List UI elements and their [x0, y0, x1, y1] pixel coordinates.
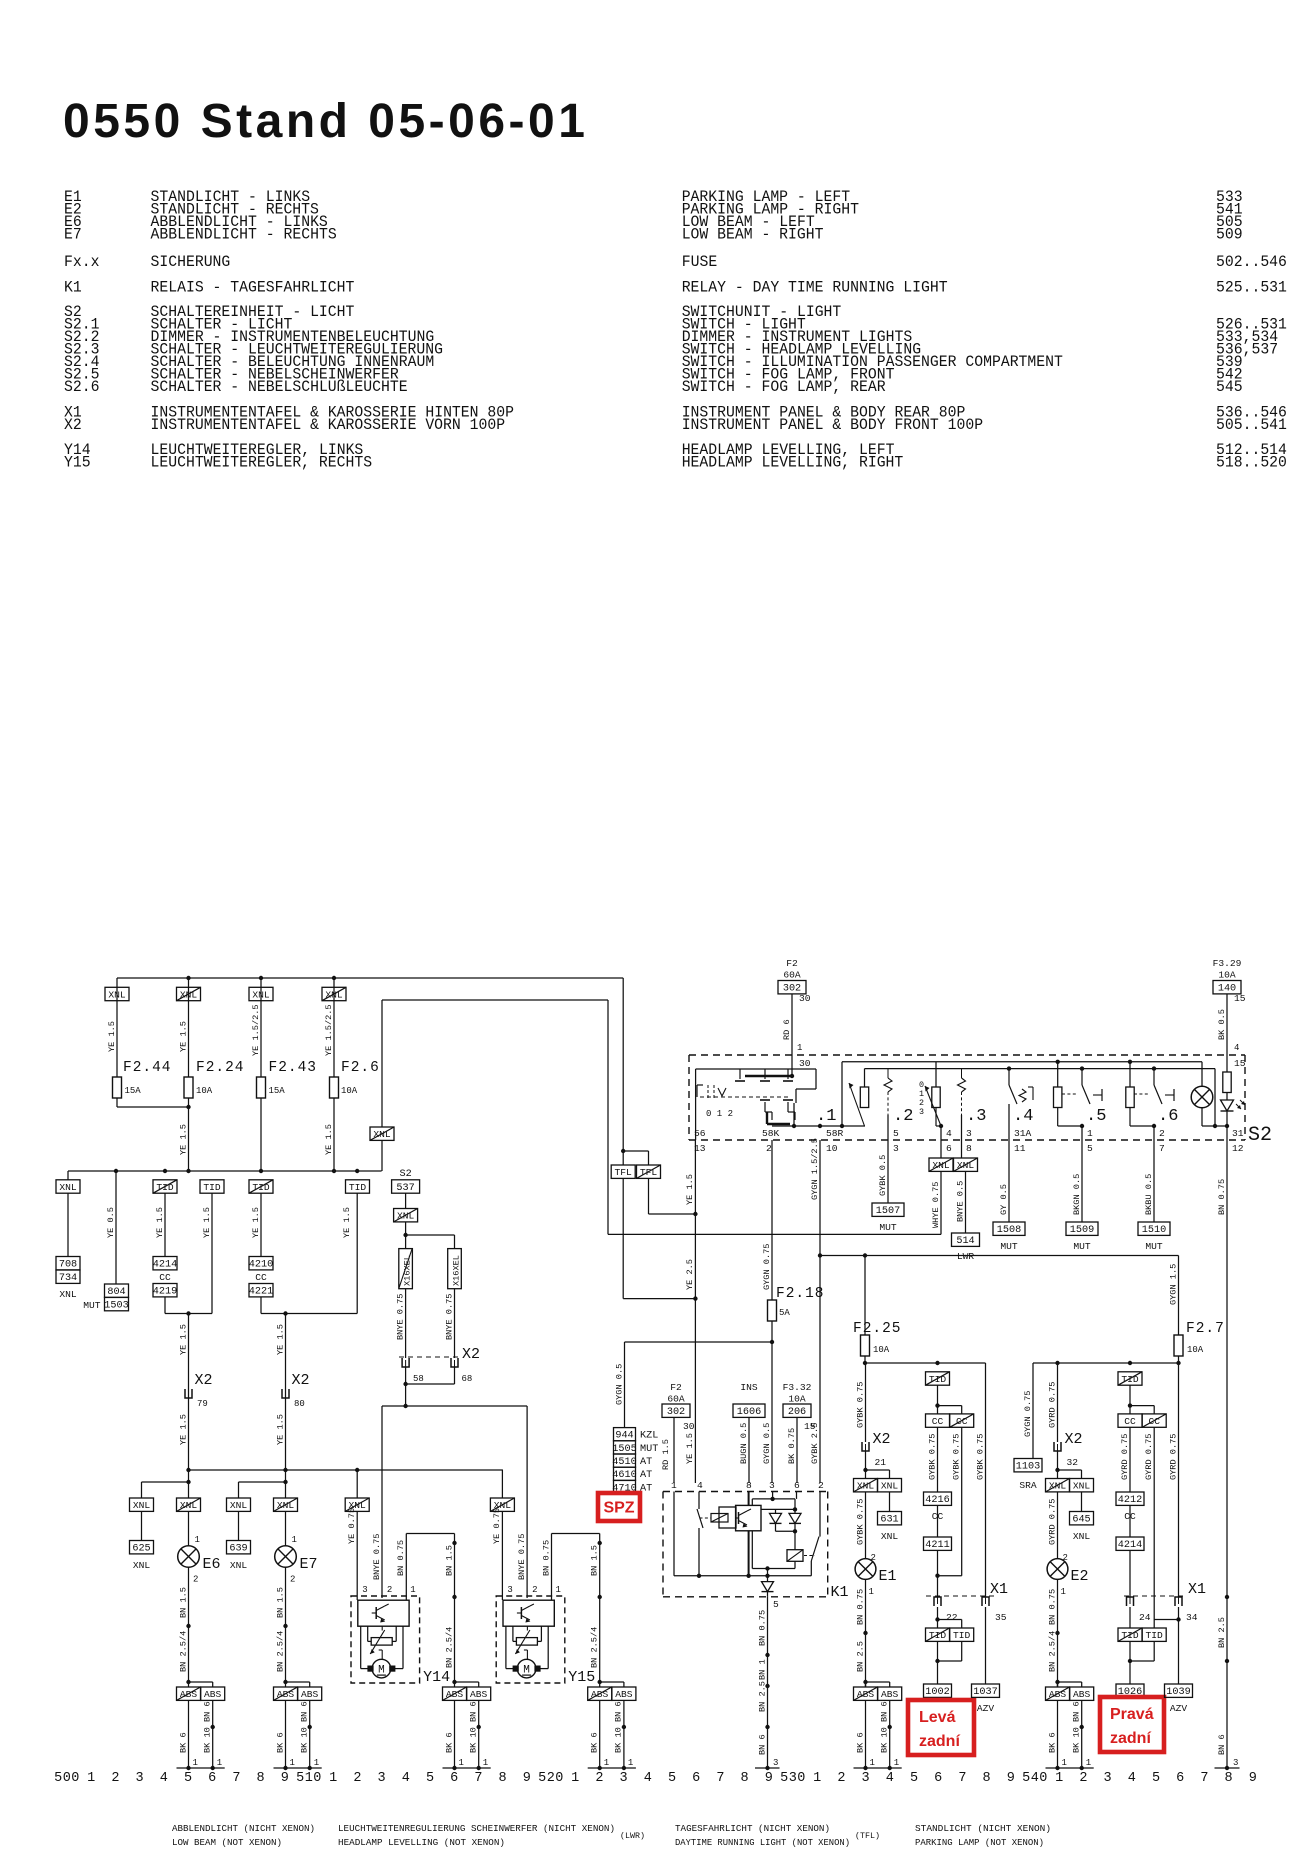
- svg-text:GYBK 0.75: GYBK 0.75: [975, 1434, 985, 1480]
- svg-text:4210: 4210: [249, 1260, 273, 1271]
- svg-text:YE 2.5: YE 2.5: [685, 1259, 695, 1290]
- svg-text:1510: 1510: [1142, 1225, 1166, 1236]
- svg-text:4214: 4214: [1118, 1540, 1142, 1551]
- svg-text:GYBK 0.75: GYBK 0.75: [927, 1434, 937, 1480]
- svg-text:1: 1: [556, 1585, 561, 1595]
- svg-text:BN 2.5: BN 2.5: [1217, 1617, 1227, 1648]
- svg-text:XNL: XNL: [108, 990, 126, 1001]
- svg-text:3: 3: [362, 1585, 367, 1595]
- svg-text:LEUCHTWEITENREGULIERUNG SCHEIN: LEUCHTWEITENREGULIERUNG SCHEINWERFER (NI…: [338, 1823, 615, 1834]
- svg-text:3: 3: [966, 1128, 972, 1139]
- svg-text:GYRD 0.75: GYRD 0.75: [1047, 1499, 1057, 1545]
- svg-text:Y15: Y15: [64, 454, 91, 472]
- svg-text:YE 0.5: YE 0.5: [106, 1207, 116, 1238]
- svg-text:31: 31: [1232, 1128, 1244, 1139]
- svg-text:YE 1.5: YE 1.5: [251, 1207, 261, 1238]
- svg-text:GYGN 0.5: GYGN 0.5: [614, 1364, 624, 1405]
- svg-text:79: 79: [197, 1399, 208, 1409]
- svg-text:4214: 4214: [153, 1260, 177, 1271]
- svg-text:7: 7: [958, 1771, 966, 1786]
- svg-text:631: 631: [880, 1515, 898, 1526]
- svg-text:10A: 10A: [788, 1394, 806, 1405]
- svg-text:0 1 2: 0 1 2: [706, 1109, 733, 1119]
- svg-text:510: 510: [296, 1771, 322, 1786]
- svg-text:1: 1: [459, 1758, 464, 1768]
- svg-text:500: 500: [54, 1771, 80, 1786]
- svg-text:1507: 1507: [876, 1206, 900, 1217]
- svg-text:.1: .1: [816, 1107, 836, 1126]
- svg-text:9: 9: [765, 1771, 773, 1786]
- svg-text:4: 4: [160, 1771, 168, 1786]
- svg-text:BN 6: BN 6: [1217, 1734, 1227, 1755]
- svg-text:SWITCH - FOG LAMP, REAR: SWITCH - FOG LAMP, REAR: [682, 378, 886, 396]
- svg-text:4221: 4221: [249, 1287, 273, 1298]
- svg-text:BN 1.5: BN 1.5: [444, 1545, 454, 1576]
- svg-text:XNL: XNL: [133, 1500, 151, 1511]
- svg-text:2: 2: [387, 1585, 392, 1595]
- svg-text:6: 6: [450, 1771, 458, 1786]
- svg-text:YE 1.5: YE 1.5: [178, 1124, 188, 1155]
- svg-text:6: 6: [794, 1480, 800, 1491]
- svg-text:BN 2.5/4: BN 2.5/4: [444, 1627, 454, 1668]
- svg-text:.3: .3: [966, 1107, 986, 1126]
- svg-text:509: 509: [1216, 226, 1243, 244]
- svg-text:CC: CC: [159, 1272, 171, 1283]
- svg-text:6: 6: [1176, 1771, 1184, 1786]
- svg-text:804: 804: [107, 1287, 125, 1298]
- svg-text:9: 9: [1007, 1771, 1015, 1786]
- svg-text:1: 1: [671, 1480, 677, 1491]
- svg-text:TID: TID: [953, 1630, 971, 1641]
- svg-text:15: 15: [1234, 1058, 1246, 1069]
- svg-text:1: 1: [329, 1771, 337, 1786]
- svg-text:XNL: XNL: [133, 1560, 151, 1571]
- svg-text:BN 2.5/4: BN 2.5/4: [1047, 1631, 1057, 1672]
- svg-text:Y15: Y15: [568, 1669, 595, 1686]
- svg-text:3: 3: [507, 1585, 512, 1595]
- svg-text:1: 1: [292, 1535, 297, 1545]
- svg-text:30: 30: [799, 1058, 811, 1069]
- svg-text:BK 0.75: BK 0.75: [787, 1428, 797, 1464]
- svg-text:XNL: XNL: [230, 1560, 248, 1571]
- svg-text:BN 0.75: BN 0.75: [1217, 1179, 1227, 1215]
- svg-text:ABS: ABS: [204, 1689, 222, 1700]
- svg-text:30: 30: [683, 1421, 695, 1432]
- svg-text:5: 5: [1087, 1143, 1093, 1154]
- svg-text:3: 3: [862, 1771, 870, 1786]
- svg-text:15: 15: [804, 1421, 816, 1432]
- svg-text:X2: X2: [64, 416, 82, 434]
- svg-text:545: 545: [1216, 378, 1243, 396]
- svg-text:BN 6: BN 6: [757, 1734, 767, 1755]
- svg-text:BK 6: BK 6: [855, 1732, 865, 1753]
- svg-text:4: 4: [946, 1128, 952, 1139]
- svg-text:BN 6: BN 6: [300, 1701, 310, 1722]
- svg-text:ABS: ABS: [1073, 1689, 1091, 1700]
- svg-text:1508: 1508: [997, 1225, 1021, 1236]
- svg-text:YE 0.75: YE 0.75: [492, 1508, 502, 1544]
- svg-text:GYGN 0.5: GYGN 0.5: [762, 1423, 772, 1464]
- svg-text:1: 1: [1086, 1758, 1091, 1768]
- svg-text:YE 1.5: YE 1.5: [107, 1021, 117, 1052]
- svg-text:BK 10: BK 10: [1072, 1727, 1082, 1753]
- svg-text:K1: K1: [64, 279, 82, 297]
- svg-text:YE 1.5/2.5: YE 1.5/2.5: [324, 1004, 334, 1056]
- svg-text:YE 1.5: YE 1.5: [685, 1174, 695, 1205]
- svg-text:MUT: MUT: [1073, 1241, 1091, 1252]
- svg-text:7: 7: [1159, 1143, 1165, 1154]
- svg-text:XNL: XNL: [252, 990, 270, 1001]
- svg-text:7: 7: [474, 1771, 482, 1786]
- svg-text:BUGN 0.5: BUGN 0.5: [739, 1423, 749, 1464]
- svg-text:AT: AT: [640, 1457, 652, 1468]
- svg-text:F2.24: F2.24: [196, 1060, 245, 1076]
- svg-text:X2: X2: [292, 1372, 310, 1389]
- svg-text:TID: TID: [1146, 1630, 1164, 1641]
- svg-text:BN 0.75: BN 0.75: [855, 1589, 865, 1625]
- svg-text:BN 0.75: BN 0.75: [541, 1540, 551, 1576]
- svg-text:GYRD 0.75: GYRD 0.75: [1047, 1382, 1057, 1428]
- svg-text:GYBK 0.5: GYBK 0.5: [878, 1155, 888, 1196]
- svg-text:RELAIS - TAGESFAHRLICHT: RELAIS - TAGESFAHRLICHT: [151, 279, 355, 297]
- svg-text:GYBK 0.75: GYBK 0.75: [952, 1434, 962, 1480]
- svg-text:YE 1.5/2.5: YE 1.5/2.5: [251, 1004, 261, 1056]
- svg-text:625: 625: [132, 1544, 150, 1555]
- svg-text:MUT: MUT: [83, 1300, 101, 1311]
- svg-text:F2: F2: [786, 958, 798, 969]
- svg-text:XNL: XNL: [59, 1182, 77, 1193]
- svg-text:XNL: XNL: [59, 1289, 77, 1300]
- svg-text:5: 5: [184, 1771, 192, 1786]
- svg-text:SRA: SRA: [1019, 1480, 1037, 1491]
- svg-text:4610: 4610: [612, 1470, 636, 1481]
- svg-text:FUSE: FUSE: [682, 253, 718, 271]
- svg-text:518..520: 518..520: [1216, 454, 1287, 472]
- svg-text:GYRD 0.75: GYRD 0.75: [1168, 1434, 1178, 1480]
- svg-text:.6: .6: [1158, 1107, 1178, 1126]
- svg-text:1: 1: [314, 1758, 319, 1768]
- svg-text:BN 6: BN 6: [614, 1701, 624, 1722]
- svg-text:LEUCHTWEITEREGLER, RECHTS: LEUCHTWEITEREGLER, RECHTS: [151, 454, 373, 472]
- svg-text:1: 1: [217, 1758, 222, 1768]
- svg-text:BK 6: BK 6: [444, 1732, 454, 1753]
- svg-text:X2: X2: [1065, 1431, 1083, 1448]
- svg-text:BN 2.5: BN 2.5: [855, 1641, 865, 1672]
- svg-text:7: 7: [232, 1771, 240, 1786]
- svg-text:9: 9: [523, 1771, 531, 1786]
- svg-text:XNL: XNL: [881, 1531, 899, 1542]
- svg-text:(LWR): (LWR): [620, 1831, 645, 1841]
- svg-text:S2.6: S2.6: [64, 378, 100, 396]
- svg-text:SPZ: SPZ: [603, 1500, 634, 1517]
- svg-text:ABS: ABS: [615, 1689, 633, 1700]
- svg-text:1: 1: [894, 1758, 899, 1768]
- svg-text:BK 6: BK 6: [275, 1732, 285, 1753]
- svg-text:1: 1: [813, 1771, 821, 1786]
- svg-text:YE 1.5: YE 1.5: [275, 1324, 285, 1355]
- svg-text:F2.7: F2.7: [1186, 1321, 1225, 1337]
- svg-text:BK 6: BK 6: [1047, 1732, 1057, 1753]
- svg-text:KZL: KZL: [640, 1431, 658, 1442]
- svg-text:INSTRUMENT PANEL & BODY FRONT: INSTRUMENT PANEL & BODY FRONT 100P: [682, 416, 983, 434]
- svg-text:1: 1: [571, 1771, 579, 1786]
- svg-text:X1: X1: [1188, 1581, 1206, 1598]
- svg-text:708: 708: [59, 1260, 77, 1271]
- svg-text:HEADLAMP LEVELLING (NOT XENON): HEADLAMP LEVELLING (NOT XENON): [338, 1837, 505, 1848]
- svg-text:639: 639: [229, 1544, 247, 1555]
- svg-text:2: 2: [595, 1771, 603, 1786]
- svg-text:4: 4: [1128, 1771, 1136, 1786]
- svg-text:E2: E2: [1071, 1568, 1089, 1585]
- svg-text:15: 15: [1234, 993, 1246, 1004]
- svg-text:3: 3: [378, 1771, 386, 1786]
- svg-text:3: 3: [1233, 1758, 1238, 1768]
- svg-text:12: 12: [1232, 1143, 1244, 1154]
- svg-text:E7: E7: [64, 226, 82, 244]
- svg-text:2: 2: [837, 1771, 845, 1786]
- svg-text:YE 0.75: YE 0.75: [347, 1508, 357, 1544]
- svg-text:F3.29: F3.29: [1213, 958, 1242, 969]
- svg-text:2: 2: [532, 1585, 537, 1595]
- svg-text:X2: X2: [873, 1431, 891, 1448]
- svg-text:3: 3: [1104, 1771, 1112, 1786]
- svg-text:BN 6: BN 6: [880, 1701, 890, 1722]
- svg-text:3: 3: [769, 1480, 775, 1491]
- svg-text:1: 1: [870, 1758, 875, 1768]
- svg-text:2: 2: [193, 1575, 198, 1585]
- svg-text:GYBK 0.75: GYBK 0.75: [855, 1499, 865, 1545]
- svg-text:BN 6: BN 6: [469, 1701, 479, 1722]
- svg-text:530: 530: [780, 1771, 806, 1786]
- svg-text:YE 1.5: YE 1.5: [342, 1207, 352, 1238]
- svg-text:505..541: 505..541: [1216, 416, 1287, 434]
- svg-text:STANDLICHT (NICHT XENON): STANDLICHT (NICHT XENON): [915, 1823, 1051, 1834]
- svg-text:F2.43: F2.43: [269, 1060, 318, 1076]
- svg-text:K1: K1: [831, 1584, 849, 1601]
- svg-text:ABS: ABS: [881, 1689, 899, 1700]
- svg-text:HEADLAMP LEVELLING, RIGHT: HEADLAMP LEVELLING, RIGHT: [682, 454, 904, 472]
- svg-text:RD 6: RD 6: [782, 1019, 792, 1040]
- svg-text:F3.32: F3.32: [783, 1382, 812, 1393]
- svg-text:9: 9: [281, 1771, 289, 1786]
- svg-text:11: 11: [1014, 1143, 1026, 1154]
- svg-text:BKBU 0.5: BKBU 0.5: [1144, 1174, 1154, 1215]
- svg-text:32: 32: [1067, 1457, 1079, 1468]
- svg-text:GYGN 0.75: GYGN 0.75: [1023, 1391, 1033, 1437]
- svg-text:2: 2: [111, 1771, 119, 1786]
- svg-text:MUT: MUT: [1145, 1241, 1163, 1252]
- svg-text:35: 35: [995, 1612, 1007, 1623]
- svg-text:21: 21: [875, 1457, 887, 1468]
- svg-text:6: 6: [692, 1771, 700, 1786]
- svg-text:4: 4: [644, 1771, 652, 1786]
- svg-text:1505: 1505: [612, 1444, 636, 1455]
- svg-text:3: 3: [773, 1758, 778, 1768]
- svg-text:S2: S2: [399, 1169, 411, 1180]
- svg-text:YE 1.5: YE 1.5: [178, 1414, 188, 1445]
- svg-text:3: 3: [136, 1771, 144, 1786]
- svg-text:30: 30: [799, 993, 811, 1004]
- svg-text:MUT: MUT: [640, 1444, 658, 1455]
- svg-text:68: 68: [462, 1374, 473, 1384]
- svg-text:BN 0.75: BN 0.75: [757, 1610, 767, 1646]
- svg-text:BK 0.5: BK 0.5: [1217, 1009, 1227, 1040]
- svg-text:ABS: ABS: [301, 1689, 319, 1700]
- svg-text:6: 6: [208, 1771, 216, 1786]
- svg-text:1002: 1002: [925, 1687, 949, 1698]
- svg-text:2: 2: [290, 1575, 295, 1585]
- svg-text:BN 1: BN 1: [757, 1659, 767, 1680]
- svg-text:BNYE 0.75: BNYE 0.75: [444, 1294, 454, 1340]
- svg-text:.5: .5: [1086, 1107, 1106, 1126]
- svg-text:302: 302: [667, 1407, 685, 1418]
- svg-text:1: 1: [1061, 1587, 1066, 1597]
- svg-text:537: 537: [396, 1183, 414, 1194]
- svg-text:YE 1.5: YE 1.5: [275, 1414, 285, 1445]
- svg-text:BK 6: BK 6: [590, 1732, 600, 1753]
- svg-text:RD 1.5: RD 1.5: [661, 1439, 671, 1470]
- svg-text:24: 24: [1139, 1612, 1151, 1623]
- svg-text:TAGESFAHRLICHT (NICHT XENON): TAGESFAHRLICHT (NICHT XENON): [675, 1823, 830, 1834]
- svg-text:1: 1: [87, 1771, 95, 1786]
- svg-text:XNL: XNL: [881, 1481, 899, 1492]
- svg-text:.4: .4: [1013, 1107, 1033, 1126]
- svg-text:LOW BEAM (NOT XENON): LOW BEAM (NOT XENON): [172, 1837, 282, 1848]
- svg-text:540: 540: [1022, 1771, 1048, 1786]
- svg-text:F2: F2: [670, 1382, 682, 1393]
- svg-text:525..531: 525..531: [1216, 279, 1287, 297]
- svg-text:BNYE 0.5: BNYE 0.5: [955, 1181, 965, 1222]
- svg-text:0550 Stand 05-06-01: 0550 Stand 05-06-01: [63, 95, 588, 148]
- svg-text:GYGN 1.5: GYGN 1.5: [1168, 1264, 1178, 1305]
- svg-text:1503: 1503: [104, 1301, 128, 1312]
- svg-text:3: 3: [893, 1143, 899, 1154]
- svg-text:58R: 58R: [826, 1128, 844, 1139]
- svg-text:TID: TID: [203, 1182, 221, 1193]
- svg-text:10A: 10A: [1187, 1345, 1204, 1355]
- svg-text:4: 4: [697, 1480, 703, 1491]
- svg-text:8: 8: [257, 1771, 265, 1786]
- svg-text:5A: 5A: [779, 1308, 790, 1318]
- svg-text:6: 6: [934, 1771, 942, 1786]
- svg-text:X16XEL: X16XEL: [451, 1255, 461, 1286]
- svg-text:DAYTIME RUNNING LIGHT (NOT XEN: DAYTIME RUNNING LIGHT (NOT XENON): [675, 1837, 850, 1848]
- svg-text:BN 0.75: BN 0.75: [1047, 1589, 1057, 1625]
- svg-text:SICHERUNG: SICHERUNG: [151, 253, 231, 271]
- svg-text:BN 2.5/4: BN 2.5/4: [178, 1631, 188, 1672]
- svg-text:YE 1.5: YE 1.5: [155, 1207, 165, 1238]
- svg-text:4219: 4219: [153, 1287, 177, 1298]
- svg-text:5: 5: [668, 1771, 676, 1786]
- svg-text:4: 4: [1234, 1043, 1239, 1053]
- svg-text:8: 8: [1225, 1771, 1233, 1786]
- svg-text:ABS: ABS: [470, 1689, 488, 1700]
- svg-text:8: 8: [741, 1771, 749, 1786]
- svg-text:YE 1.5: YE 1.5: [324, 1124, 334, 1155]
- svg-text:YE 1.5: YE 1.5: [178, 1021, 188, 1052]
- svg-text:INSTRUMENTENTAFEL & KAROSSERIE: INSTRUMENTENTAFEL & KAROSSERIE VORN 100P: [151, 416, 506, 434]
- svg-text:GYRD 0.75: GYRD 0.75: [1120, 1434, 1130, 1480]
- svg-text:YE 1.5: YE 1.5: [202, 1207, 212, 1238]
- svg-text:X2: X2: [195, 1372, 213, 1389]
- svg-text:BN 0.75: BN 0.75: [396, 1540, 406, 1576]
- svg-text:AZV: AZV: [1170, 1703, 1188, 1714]
- svg-text:GYRD 0.75: GYRD 0.75: [1144, 1434, 1154, 1480]
- svg-text:22: 22: [946, 1612, 958, 1623]
- svg-text:5: 5: [773, 1599, 779, 1610]
- svg-text:206: 206: [788, 1407, 806, 1418]
- svg-text:BK 10: BK 10: [880, 1727, 890, 1753]
- svg-text:4216: 4216: [925, 1495, 949, 1506]
- svg-text:TFL: TFL: [615, 1167, 633, 1178]
- svg-text:XNL: XNL: [1073, 1531, 1091, 1542]
- svg-text:10A: 10A: [873, 1345, 890, 1355]
- svg-text:514: 514: [956, 1236, 974, 1247]
- svg-text:10A: 10A: [341, 1086, 358, 1096]
- svg-text:1: 1: [483, 1758, 488, 1768]
- svg-text:4510: 4510: [612, 1457, 636, 1468]
- svg-text:1: 1: [628, 1758, 633, 1768]
- svg-text:1: 1: [195, 1535, 200, 1545]
- svg-text:BNYE 0.75: BNYE 0.75: [517, 1534, 527, 1580]
- svg-text:BN 2.5: BN 2.5: [757, 1681, 767, 1712]
- svg-text:YE 1.5: YE 1.5: [685, 1433, 695, 1464]
- svg-text:7: 7: [1200, 1771, 1208, 1786]
- svg-text:BN 6: BN 6: [203, 1701, 213, 1722]
- svg-text:4: 4: [886, 1771, 894, 1786]
- svg-text:MUT: MUT: [1000, 1241, 1018, 1252]
- svg-text:645: 645: [1072, 1515, 1090, 1526]
- svg-text:S2: S2: [1248, 1124, 1272, 1147]
- svg-text:15A: 15A: [125, 1086, 142, 1096]
- svg-text:BN 6: BN 6: [1072, 1701, 1082, 1722]
- svg-text:PARKING LAMP (NOT XENON): PARKING LAMP (NOT XENON): [915, 1837, 1044, 1848]
- svg-text:BK 10: BK 10: [203, 1727, 213, 1753]
- svg-text:1: 1: [193, 1758, 198, 1768]
- svg-text:Y14: Y14: [423, 1669, 450, 1686]
- svg-text:60A: 60A: [667, 1394, 685, 1405]
- svg-text:58K: 58K: [762, 1128, 780, 1139]
- svg-text:LWR: LWR: [957, 1251, 975, 1262]
- svg-text:BN 2.5/4: BN 2.5/4: [590, 1627, 600, 1668]
- svg-text:1606: 1606: [737, 1407, 761, 1418]
- svg-text:zadní: zadní: [1110, 1730, 1151, 1747]
- svg-text:1: 1: [604, 1758, 609, 1768]
- svg-text:F2.6: F2.6: [341, 1060, 380, 1076]
- svg-text:(TFL): (TFL): [855, 1831, 880, 1841]
- svg-text:SCHALTER - NEBELSCHLUßLEUCHTE: SCHALTER - NEBELSCHLUßLEUCHTE: [151, 378, 408, 396]
- svg-text:1039: 1039: [1166, 1687, 1190, 1698]
- svg-text:58: 58: [413, 1374, 424, 1384]
- svg-text:2: 2: [818, 1480, 824, 1491]
- svg-text:2: 2: [1159, 1128, 1165, 1139]
- svg-text:34: 34: [1186, 1612, 1198, 1623]
- svg-text:BK 10: BK 10: [300, 1727, 310, 1753]
- svg-text:AT: AT: [640, 1470, 652, 1481]
- svg-text:TID: TID: [349, 1182, 367, 1193]
- svg-text:MUT: MUT: [879, 1222, 897, 1233]
- svg-text:1: 1: [1087, 1128, 1093, 1139]
- svg-text:GYGN 0.75: GYGN 0.75: [762, 1244, 772, 1290]
- svg-text:BNYE 0.75: BNYE 0.75: [372, 1534, 382, 1580]
- svg-text:8: 8: [499, 1771, 507, 1786]
- svg-text:520: 520: [538, 1771, 564, 1786]
- svg-text:RELAY - DAY TIME RUNNING LIGHT: RELAY - DAY TIME RUNNING LIGHT: [682, 279, 948, 297]
- svg-text:WHYE 0.75: WHYE 0.75: [931, 1182, 941, 1228]
- svg-text:F2.44: F2.44: [123, 1060, 172, 1076]
- svg-text:ABBLENDLICHT (NICHT XENON): ABBLENDLICHT (NICHT XENON): [172, 1823, 315, 1834]
- svg-text:2: 2: [353, 1771, 361, 1786]
